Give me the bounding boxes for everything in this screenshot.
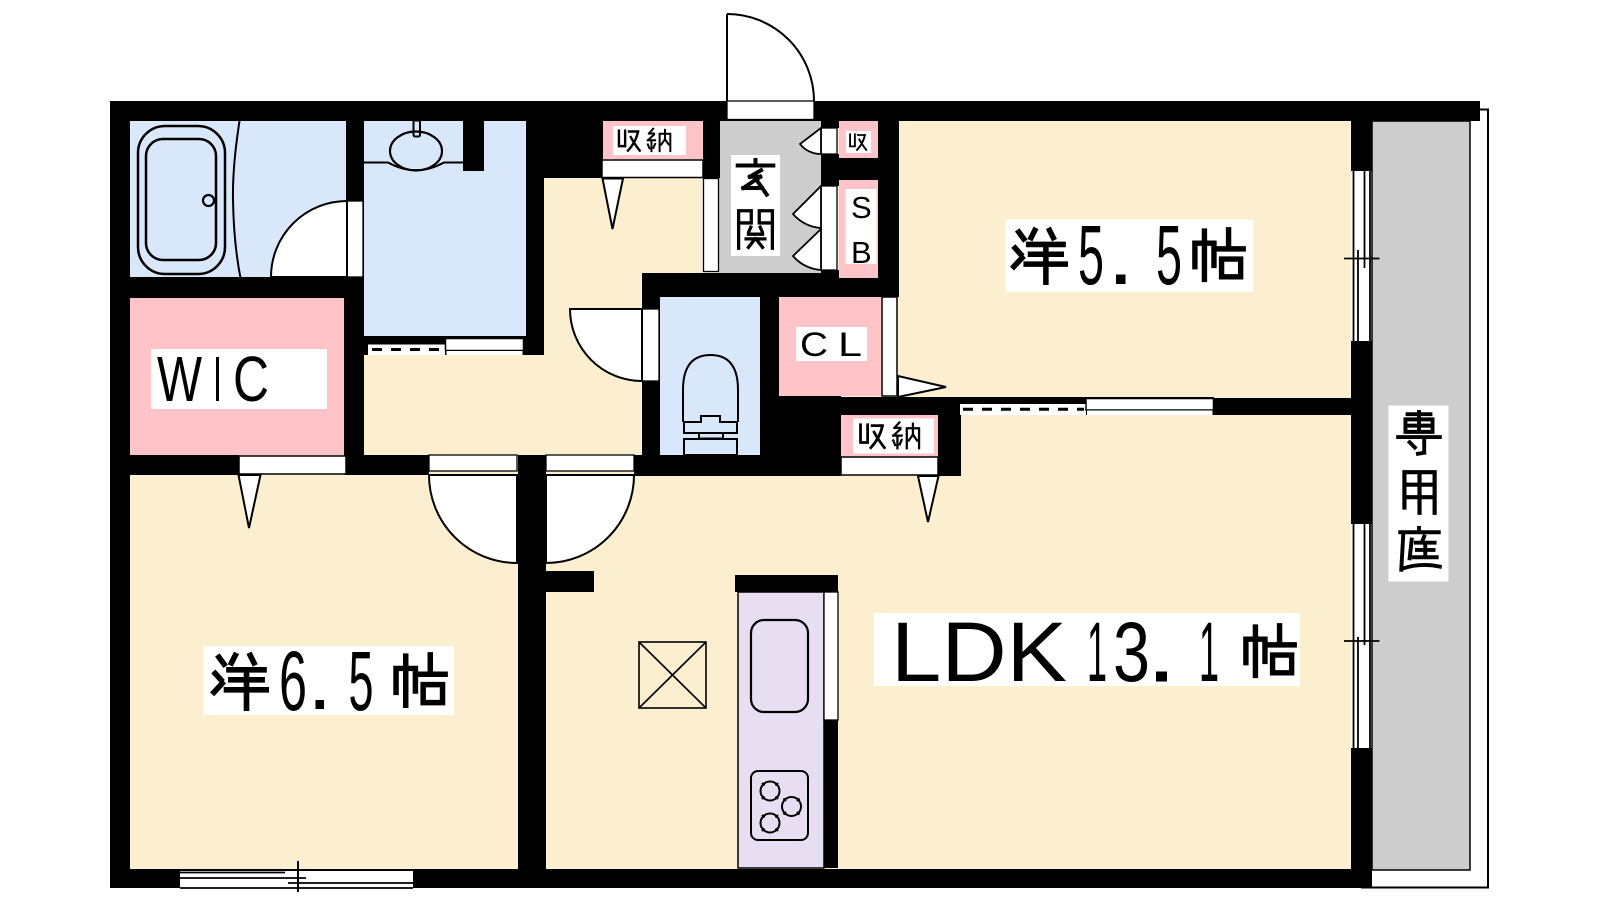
svg-text:3: 3 [1113,605,1150,699]
svg-text:W: W [157,343,202,415]
svg-text:5: 5 [1078,208,1104,302]
svg-text:B: B [851,235,872,270]
svg-text:1: 1 [1199,605,1219,699]
svg-text:L: L [838,326,862,364]
svg-text:C: C [233,343,269,415]
svg-text:5: 5 [1156,208,1182,302]
svg-text:I: I [213,343,222,415]
svg-text:1: 1 [1087,605,1107,699]
svg-text:C: C [800,326,828,364]
svg-text:LDK: LDK [891,605,1067,699]
svg-text:5: 5 [349,634,374,728]
svg-text:S: S [851,190,872,225]
svg-text:6: 6 [279,634,307,728]
